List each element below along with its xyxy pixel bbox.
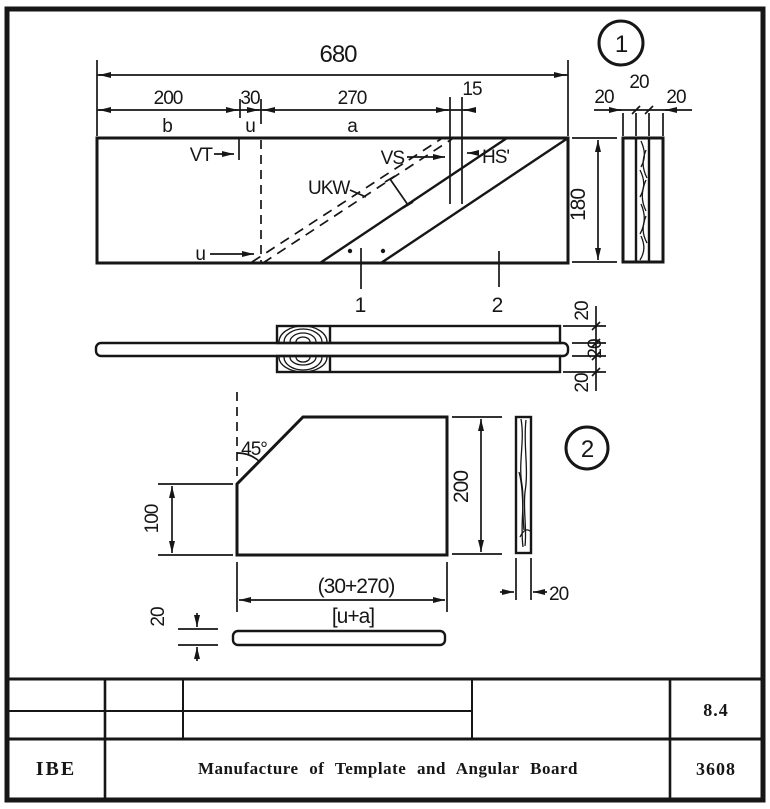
mark-dot [381,249,385,253]
dim-200-label: 200 [450,471,473,503]
section-dims: 20 20 20 [563,301,606,393]
dim-width: (30+270) [u+a] [237,562,447,628]
dim-200-label: 200 [154,88,183,109]
part2-label: 2 [492,294,503,317]
view2-front: 45° 100 200 (30+270) [u+a] 20 [142,392,502,661]
dim-100: 100 [142,484,233,555]
titleblock-code: 8.4 [703,700,729,720]
mark-dot [348,249,352,253]
sideview-dims: 20 20 20 [594,72,692,136]
ukw-label: UKW [308,178,350,199]
callout-2-label: 2 [581,436,594,463]
vs-label: VS [381,148,405,169]
titleblock-org: IBE [36,758,76,780]
dim-180: 180 [567,138,617,262]
middle-strip [96,343,568,356]
vt-label: VT [190,145,214,166]
titleblock-number: 3608 [696,759,736,779]
dim-side-20-label: 20 [549,584,569,605]
edge-dim-20-right: 20 [666,87,686,108]
view2-side: 20 2 [500,417,608,605]
dim-side-20: 20 [500,558,569,605]
layer-dim-20-bot: 20 [572,373,593,393]
side-strip-grain [519,419,530,547]
dim-15-label: 15 [462,79,482,100]
edge-dim-20-left: 20 [594,87,614,108]
title-block: IBE Manufacture of Template and Angular … [7,679,763,799]
section-view: 20 20 20 [96,301,606,393]
hs-label: HS' [482,147,509,168]
drawing-sheet: VT VS HS' UKW u 1 2 680 [0,0,770,809]
template-strip [233,631,445,645]
label-u: u [245,116,255,137]
edge-dim-20-mid: 20 [629,72,649,93]
dim-30-label: 30 [240,88,260,109]
dim-strip-20-label: 20 [148,607,169,627]
view1-front: VT VS HS' UKW u 1 2 680 [97,41,617,317]
technical-drawing: VT VS HS' UKW u 1 2 680 [0,0,770,809]
titleblock-title: Manufacture of Template and Angular Boar… [198,759,578,778]
sideview-grain [640,141,647,260]
dim-100-label: 100 [142,504,163,533]
angular-board-outline [237,417,447,555]
view1-side: 20 20 20 1 [594,21,692,262]
callout-1-label: 1 [615,31,628,58]
angle-label: 45° [241,439,267,460]
dim-680-label: 680 [319,41,357,68]
dim-270-label: 270 [338,88,367,109]
dim-width-label: (30+270) [318,575,395,598]
dim-width-formula: [u+a] [332,605,374,628]
u-edge-label: u [195,244,205,265]
label-b: b [162,116,172,137]
layer-dim-20-mid: 20 [585,339,606,359]
layer-dim-20-top: 20 [572,301,593,321]
label-a: a [347,116,358,137]
endgrain-block [279,326,327,372]
dim-row2: 200 30 270 15 b u a [97,79,482,204]
dim-200: 200 [450,417,502,554]
part1-label: 1 [355,294,366,317]
dim-strip-20: 20 [148,607,218,661]
dim-180-label: 180 [567,189,590,221]
